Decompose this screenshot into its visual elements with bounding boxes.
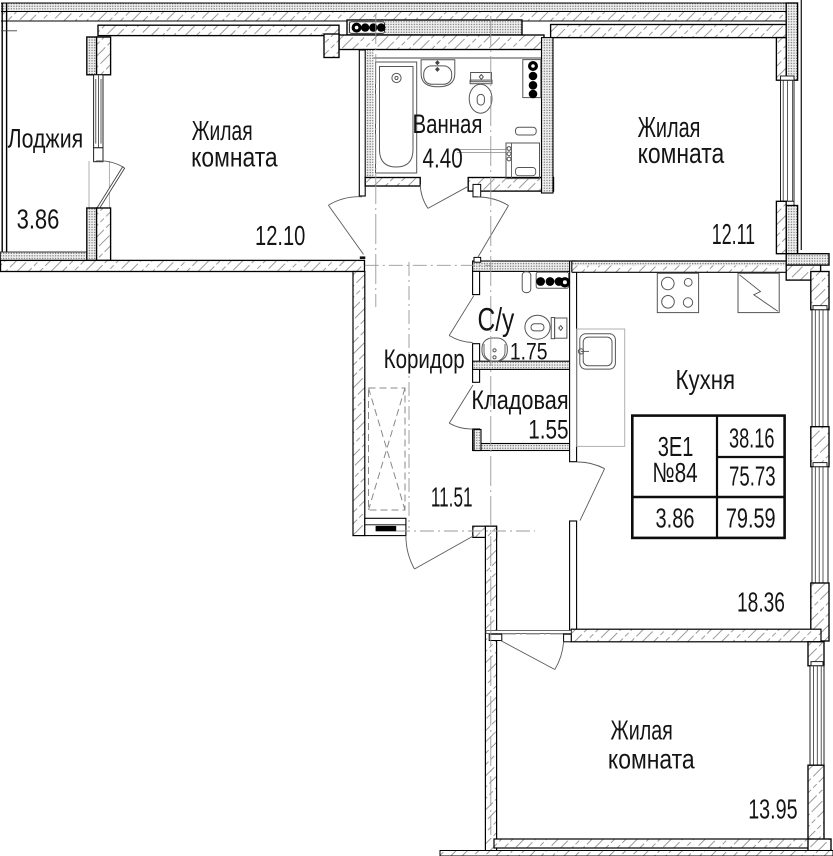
- svg-text:Ванная: Ванная: [413, 111, 483, 140]
- svg-text:38.16: 38.16: [729, 424, 774, 455]
- svg-text:1.75: 1.75: [510, 337, 548, 365]
- svg-text:Кухня: Кухня: [676, 365, 736, 396]
- svg-text:12.10: 12.10: [255, 221, 305, 252]
- svg-text:№84: №84: [652, 458, 697, 489]
- svg-text:12.11: 12.11: [712, 219, 755, 252]
- svg-text:Лоджия: Лоджия: [8, 124, 84, 154]
- svg-text:комната: комната: [608, 744, 695, 775]
- svg-text:Коридор: Коридор: [384, 344, 465, 374]
- svg-text:4.40: 4.40: [423, 144, 463, 175]
- svg-text:комната: комната: [191, 143, 278, 174]
- svg-text:1.55: 1.55: [528, 415, 568, 445]
- svg-text:С/у: С/у: [478, 302, 515, 338]
- svg-text:79.59: 79.59: [726, 503, 776, 534]
- svg-text:75.73: 75.73: [729, 461, 776, 493]
- svg-text:11.51: 11.51: [431, 481, 473, 512]
- svg-text:18.36: 18.36: [737, 587, 785, 619]
- svg-text:комната: комната: [638, 139, 725, 170]
- svg-text:Жилая: Жилая: [611, 715, 673, 746]
- svg-text:Кладовая: Кладовая: [471, 386, 568, 416]
- svg-text:3.86: 3.86: [17, 204, 60, 235]
- svg-text:3.86: 3.86: [656, 503, 695, 534]
- svg-text:13.95: 13.95: [748, 794, 797, 825]
